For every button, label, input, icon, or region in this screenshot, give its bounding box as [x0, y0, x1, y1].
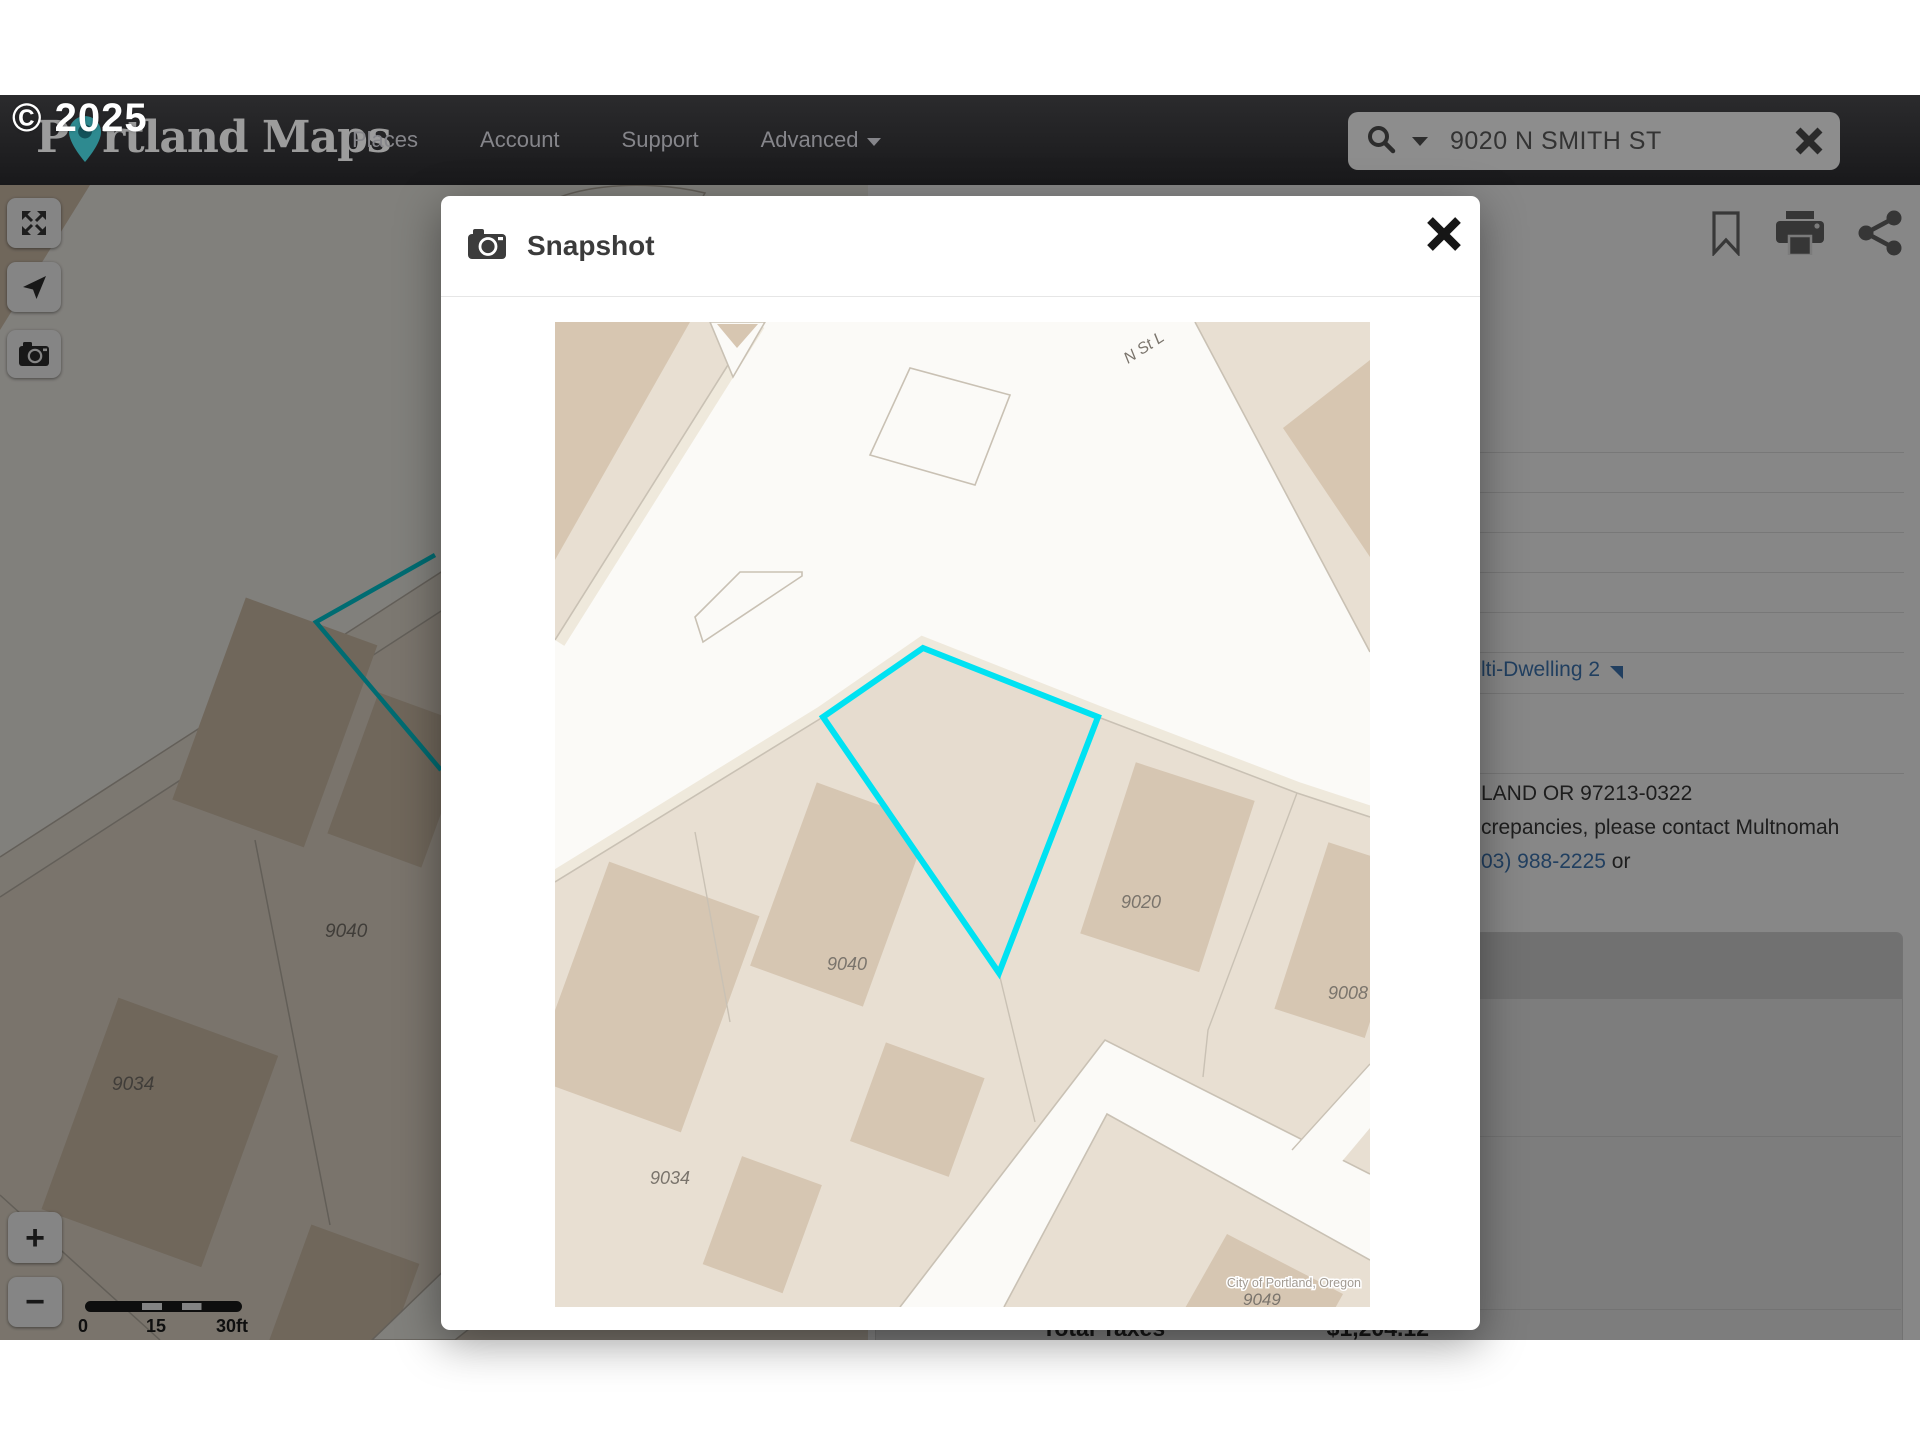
- copyright-watermark: © 2025: [12, 96, 148, 141]
- top-navbar: P rtland Maps Places Account Support Adv…: [0, 95, 1920, 185]
- search-value: 9020 N SMITH ST: [1450, 127, 1662, 156]
- parcel-label: 9034: [650, 1168, 690, 1188]
- search-clear-icon[interactable]: [1794, 126, 1824, 156]
- nav-menu: Places Account Support Advanced: [352, 95, 881, 185]
- parcel-label: 9040: [827, 954, 867, 974]
- nav-item-support[interactable]: Support: [622, 127, 699, 153]
- nav-item-advanced[interactable]: Advanced: [761, 127, 882, 153]
- close-icon: [1423, 213, 1465, 255]
- chevron-down-icon: [867, 138, 881, 146]
- nav-item-account[interactable]: Account: [480, 127, 560, 153]
- search-options-caret-icon[interactable]: [1412, 137, 1428, 146]
- search-icon: [1366, 124, 1396, 159]
- parcel-label: 9049: [1243, 1290, 1281, 1307]
- nav-item-places[interactable]: Places: [352, 127, 418, 153]
- parcel-label: 9020: [1121, 892, 1161, 912]
- snapshot-map-image: N St L 9020 9040 9034 9008 9049 City of …: [555, 322, 1370, 1307]
- modal-header: Snapshot: [441, 196, 1480, 297]
- parcel-label: 9008: [1328, 983, 1368, 1003]
- snapshot-modal: Snapshot: [441, 196, 1480, 1330]
- search-input[interactable]: 9020 N SMITH ST: [1348, 112, 1840, 170]
- modal-close-button[interactable]: [1421, 211, 1467, 257]
- modal-title: Snapshot: [527, 230, 655, 262]
- camera-icon: [468, 229, 506, 264]
- map-attribution: City of Portland, Oregon: [1227, 1276, 1361, 1290]
